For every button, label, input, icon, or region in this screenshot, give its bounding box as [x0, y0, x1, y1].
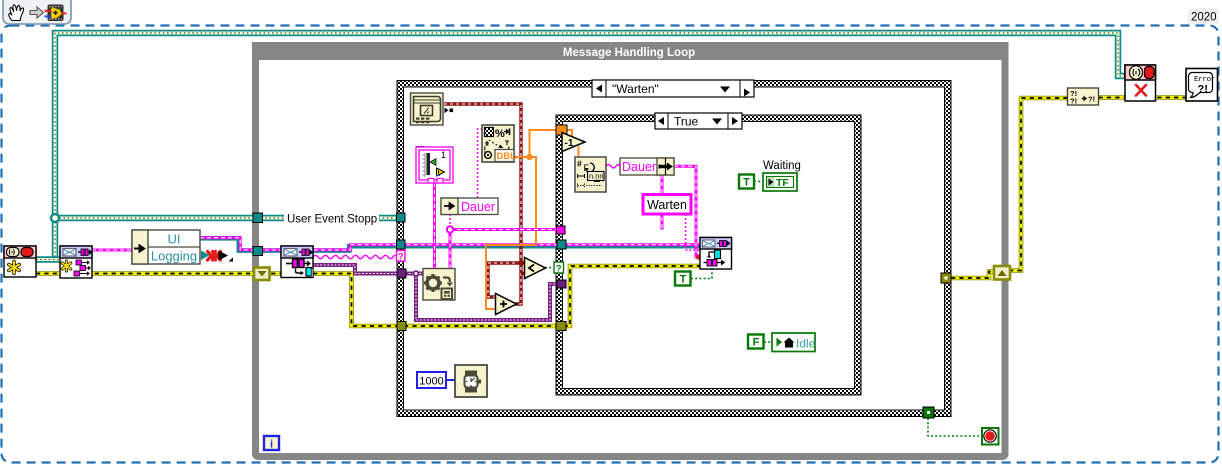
svg-text:n.nn: n.nn [589, 172, 604, 181]
svg-text:UI: UI [168, 232, 181, 247]
svg-text:T: T [680, 274, 687, 286]
svg-text:i: i [270, 439, 273, 451]
svg-text:?: ? [556, 264, 562, 275]
svg-text:Dauer: Dauer [461, 200, 495, 214]
svg-text:?!: ?! [1198, 84, 1208, 96]
svg-text:1000: 1000 [419, 376, 443, 388]
svg-text:"Warten": "Warten" [612, 82, 659, 96]
svg-text:?!: ?! [1088, 95, 1095, 104]
svg-text:F: F [753, 337, 760, 349]
svg-text:Waiting: Waiting [763, 160, 801, 172]
svg-text:2020: 2020 [1191, 12, 1217, 24]
svg-text:Message Handling Loop: Message Handling Loop [563, 47, 695, 59]
svg-text:-1: -1 [565, 138, 574, 149]
svg-text:?: ? [398, 252, 404, 263]
svg-text:1: 1 [441, 150, 446, 160]
svg-text:True: True [674, 115, 699, 129]
svg-text:Idle: Idle [796, 337, 816, 351]
svg-text:DBL: DBL [497, 151, 517, 162]
svg-text:Dauer: Dauer [622, 160, 656, 174]
svg-text:Warten: Warten [647, 198, 687, 212]
svg-text:User Event Stopp: User Event Stopp [287, 214, 377, 226]
svg-text:?!: ?! [1070, 97, 1077, 106]
svg-text:TF: TF [776, 177, 789, 189]
svg-text:Logging: Logging [151, 249, 197, 264]
svg-text:%: % [495, 128, 505, 140]
svg-text:#: # [577, 159, 582, 169]
svg-text:T: T [743, 177, 750, 189]
